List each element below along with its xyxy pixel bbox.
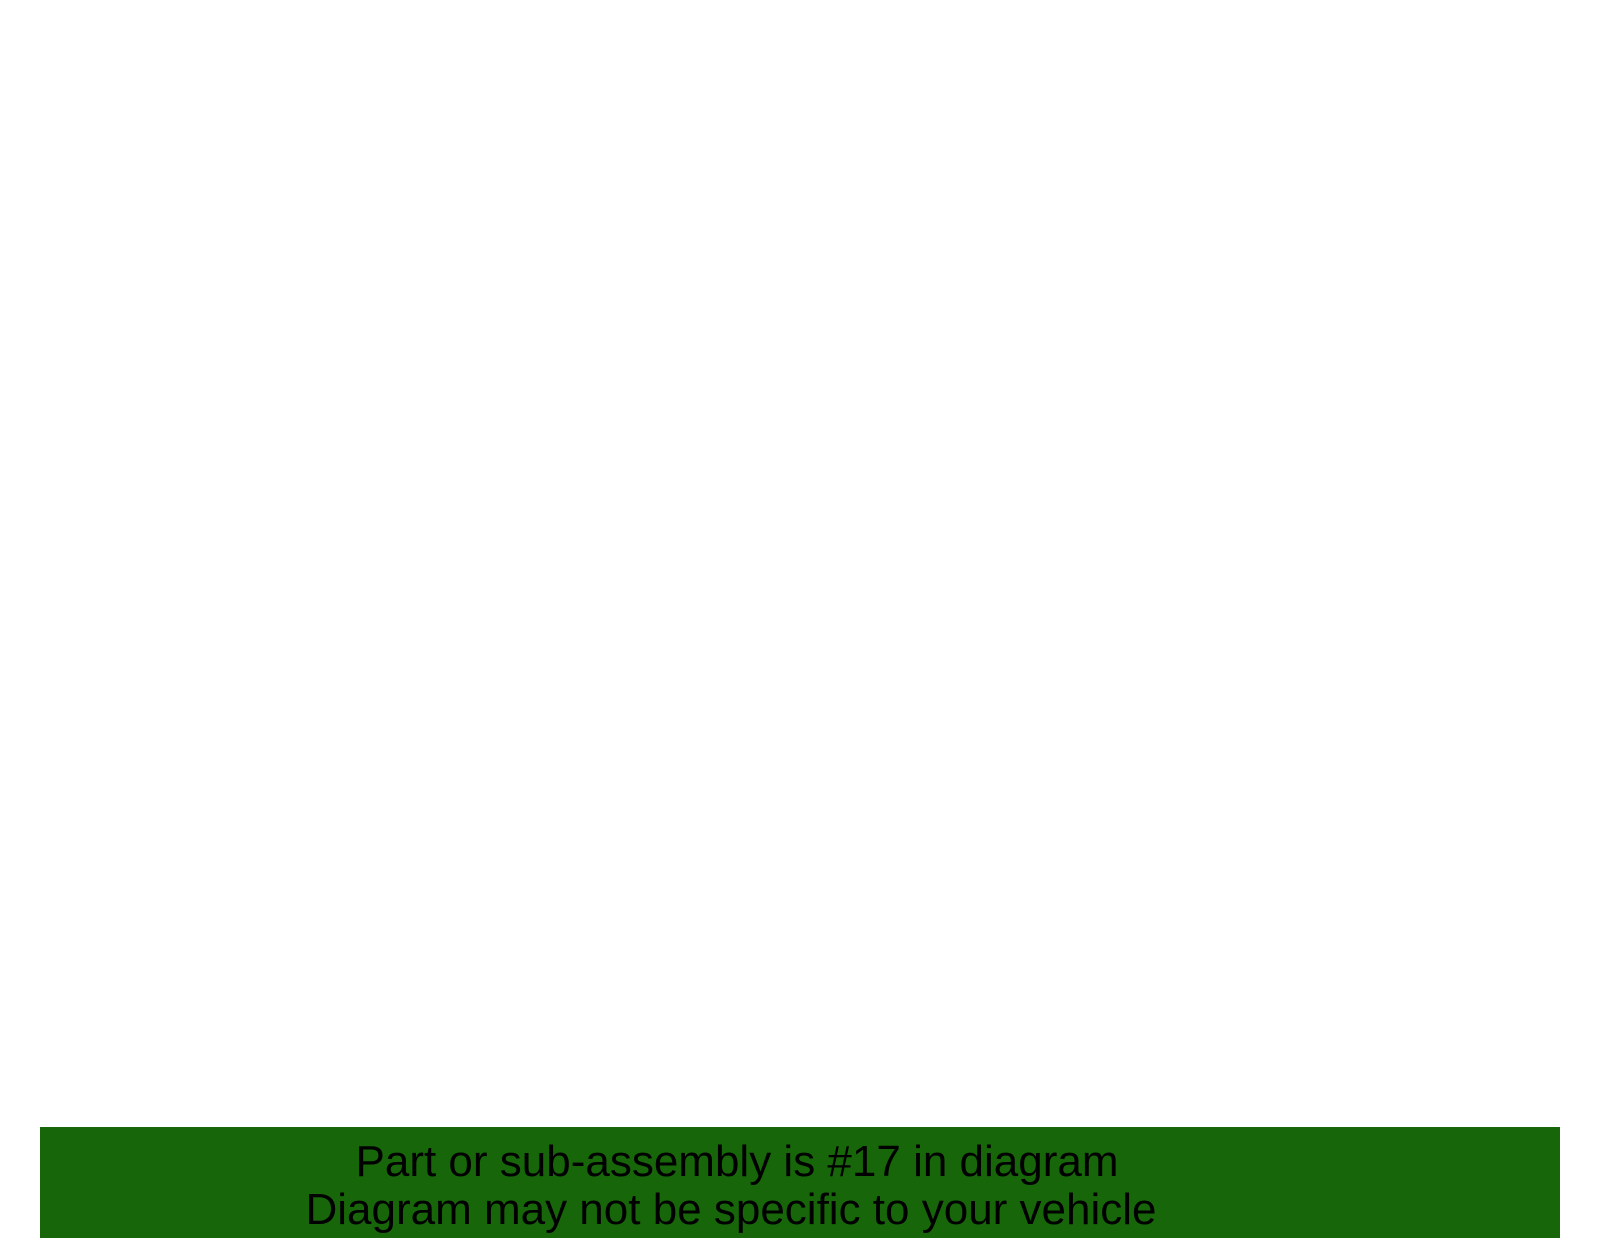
svg-text:Part or sub-assembly is #17 in: Part or sub-assembly is #17 in diagram bbox=[356, 1137, 1119, 1186]
svg-text:Diagram may not be specific to: Diagram may not be specific to your vehi… bbox=[305, 1185, 1156, 1234]
